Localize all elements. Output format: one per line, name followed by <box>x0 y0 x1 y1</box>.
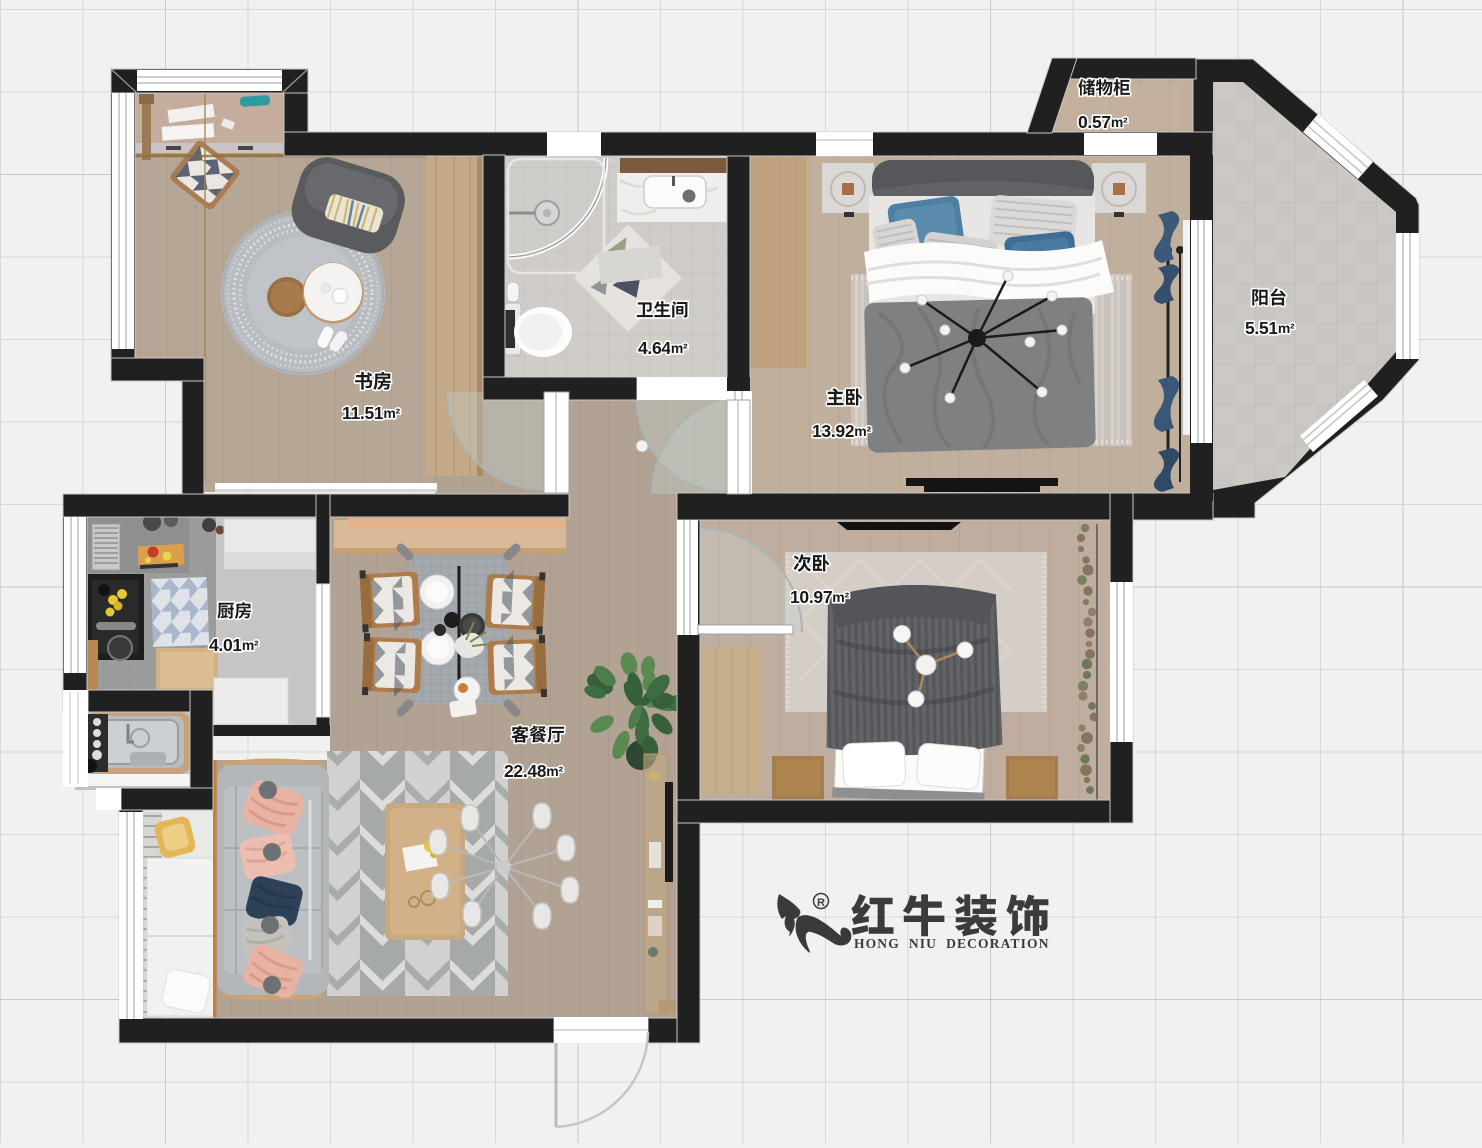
svg-text:10.97m²: 10.97m² <box>790 587 849 607</box>
svg-text:22.48m²: 22.48m² <box>504 761 563 781</box>
svg-text:5.51m²: 5.51m² <box>1245 318 1295 338</box>
svg-text:13.92m²: 13.92m² <box>812 421 871 441</box>
svg-text:HONG NIU DECORATION: HONG NIU DECORATION <box>854 936 1050 951</box>
svg-text:R: R <box>817 897 825 909</box>
svg-text:0.57m²: 0.57m² <box>1078 112 1128 132</box>
svg-text:4.64m²: 4.64m² <box>638 338 688 358</box>
svg-text:4.01m²: 4.01m² <box>209 635 259 655</box>
svg-text:11.51m²: 11.51m² <box>342 403 400 423</box>
